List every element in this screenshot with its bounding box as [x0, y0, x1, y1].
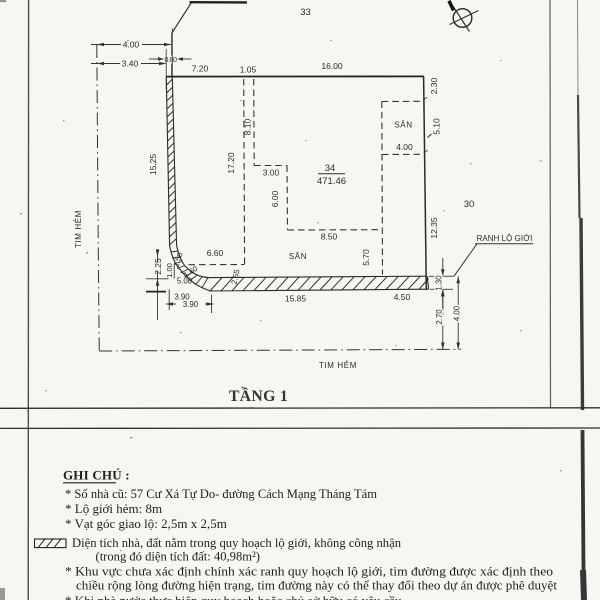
svg-text:* Lộ giới hẻm: 8m: * Lộ giới hẻm: 8m — [65, 501, 162, 516]
svg-text:chiều rộng lòng đường hiện trạ: chiều rộng lòng đường hiện trạng, tim đư… — [76, 578, 557, 593]
svg-text:33: 33 — [300, 7, 311, 18]
svg-text:4.50: 4.50 — [394, 292, 411, 302]
svg-text:471.46: 471.46 — [317, 176, 346, 187]
svg-text:8.10: 8.10 — [242, 118, 252, 135]
svg-text:TIM HẺM: TIM HẺM — [74, 210, 83, 248]
svg-text:15.25: 15.25 — [148, 154, 158, 176]
svg-text:16.00: 16.00 — [321, 61, 343, 71]
svg-text:5.00: 5.00 — [177, 277, 193, 286]
svg-text:SÂN: SÂN — [289, 252, 307, 261]
svg-text:4.00: 4.00 — [123, 40, 140, 50]
svg-text:GHI CHÚ :: GHI CHÚ : — [63, 468, 130, 483]
svg-text:30: 30 — [464, 199, 475, 210]
svg-text:SÂN: SÂN — [394, 120, 412, 129]
svg-text:3.00: 3.00 — [263, 167, 280, 177]
svg-text:4.00: 4.00 — [453, 305, 462, 321]
svg-text:RANH LỘ GIỚI: RANH LỘ GIỚI — [477, 234, 533, 243]
svg-text:5.70: 5.70 — [361, 249, 371, 266]
svg-text:* Số nhà cũ: 57 Cư Xá Tự Do- đ: * Số nhà cũ: 57 Cư Xá Tự Do- đường Cách … — [65, 486, 377, 501]
svg-text:4.00: 4.00 — [396, 142, 413, 152]
svg-text:TẦNG 1: TẦNG 1 — [229, 386, 288, 405]
svg-text:2.30: 2.30 — [429, 77, 439, 94]
svg-text:* Khi nhà nước thực hiện quy h: * Khi nhà nước thực hiện quy hoạch hoặc … — [65, 593, 402, 600]
svg-text:* Khu vực chưa xác định chính: * Khu vực chưa xác định chính xác ranh q… — [65, 564, 553, 579]
svg-text:TIM HẺM: TIM HẺM — [319, 361, 357, 370]
svg-text:1.05: 1.05 — [240, 65, 257, 75]
svg-text:8.50: 8.50 — [321, 231, 338, 241]
svg-text:6.60: 6.60 — [207, 248, 224, 258]
svg-text:34: 34 — [325, 163, 336, 174]
svg-text:* Vạt góc giao lộ: 2,5m x 2,5m: * Vạt góc giao lộ: 2,5m x 2,5m — [65, 516, 227, 531]
svg-text:12.35: 12.35 — [429, 217, 439, 239]
svg-text:7.20: 7.20 — [192, 64, 209, 74]
svg-text:5.10: 5.10 — [432, 118, 442, 135]
svg-text:2.25: 2.25 — [153, 258, 163, 275]
svg-text:3.40: 3.40 — [122, 59, 139, 69]
svg-text:1.30: 1.30 — [435, 275, 444, 291]
svg-text:2.70: 2.70 — [435, 309, 444, 325]
svg-text:17.20: 17.20 — [226, 152, 236, 174]
svg-text:15.85: 15.85 — [285, 293, 307, 303]
svg-text:3.90: 3.90 — [183, 300, 199, 309]
svg-text:6.00: 6.00 — [270, 190, 280, 207]
